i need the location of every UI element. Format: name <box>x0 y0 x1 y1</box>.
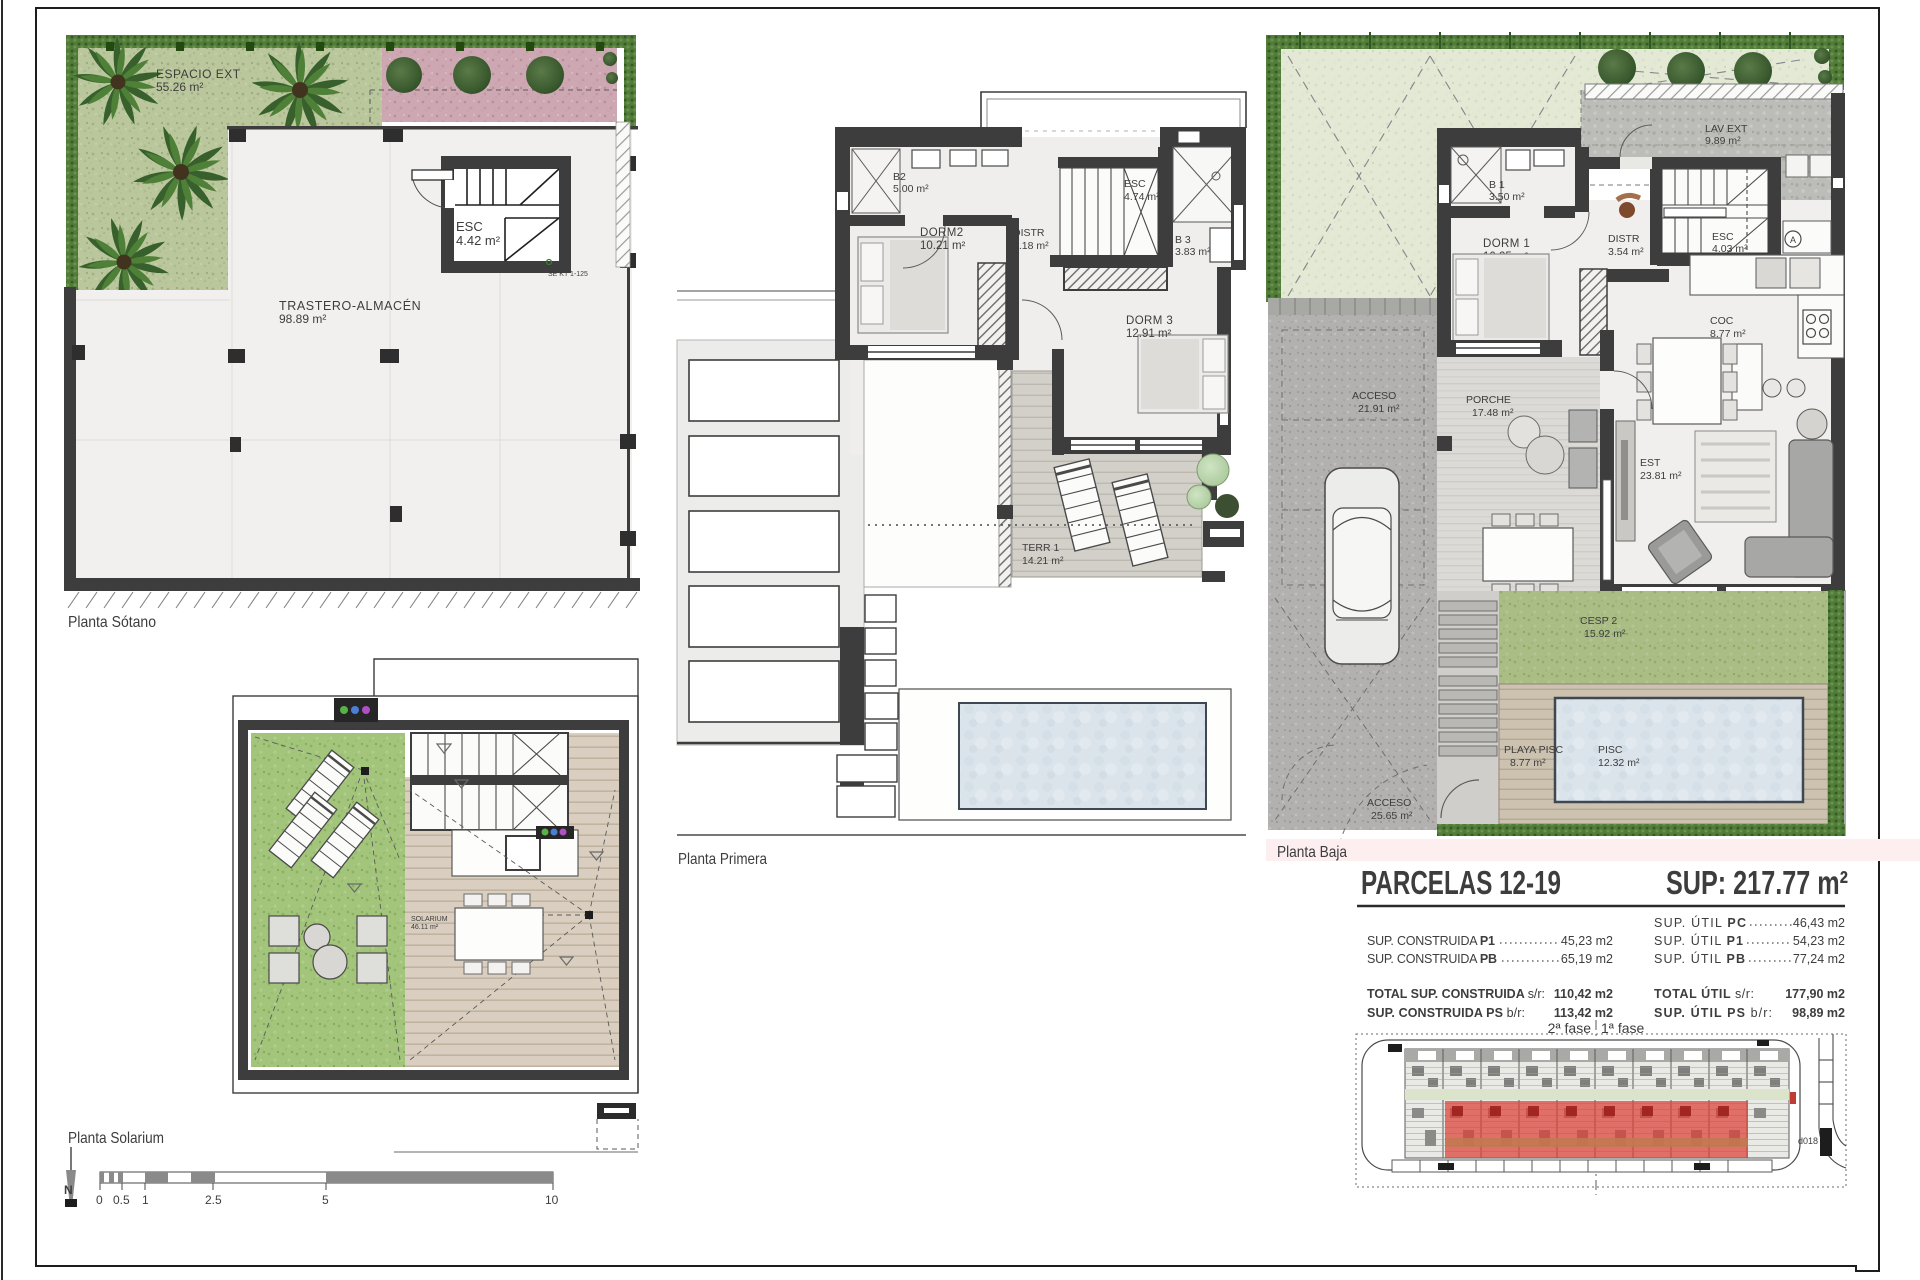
svg-text:46.11 m²: 46.11 m² <box>411 924 439 931</box>
svg-text:1: 1 <box>142 1193 149 1207</box>
svg-text:TRASTERO-ALMACÉN: TRASTERO-ALMACÉN <box>279 298 421 313</box>
svg-text:PISC: PISC <box>1598 744 1623 756</box>
svg-text:ACCESO: ACCESO <box>1352 390 1396 402</box>
svg-text:SUP. CONSTRUIDA P1: SUP. CONSTRUIDA P1 <box>1367 934 1495 948</box>
svg-text:3.54 m²: 3.54 m² <box>1608 246 1644 258</box>
svg-text:65,19 m2: 65,19 m2 <box>1561 952 1613 966</box>
svg-text:110,42 m2: 110,42 m2 <box>1554 987 1613 1001</box>
svg-text:21.91 m²: 21.91 m² <box>1358 403 1400 415</box>
svg-text:46,43 m2: 46,43 m2 <box>1793 916 1845 930</box>
svg-text:3.50 m²: 3.50 m² <box>1489 191 1525 203</box>
svg-text:ACCESO: ACCESO <box>1367 797 1411 809</box>
svg-text:PARCELAS 12-19: PARCELAS 12-19 <box>1361 864 1561 901</box>
svg-text:PLAYA PISC: PLAYA PISC <box>1504 744 1564 756</box>
svg-text:98,89 m2: 98,89 m2 <box>1792 1006 1845 1020</box>
svg-text:55.26 m²: 55.26 m² <box>156 80 203 94</box>
svg-text:23.81 m²: 23.81 m² <box>1640 470 1682 482</box>
svg-text:B 3: B 3 <box>1175 234 1191 246</box>
svg-text:SUP. CONSTRUIDA PS b/r:: SUP. CONSTRUIDA PS b/r: <box>1367 1006 1525 1020</box>
svg-text:A: A <box>1790 235 1796 245</box>
svg-text:15.92 m²: 15.92 m² <box>1584 628 1626 640</box>
svg-text:12.32 m²: 12.32 m² <box>1598 757 1640 769</box>
svg-text:SUP: 217.77 m²: SUP: 217.77 m² <box>1666 864 1848 901</box>
svg-text:2ª fase: 2ª fase <box>1548 1020 1592 1036</box>
svg-text:3.18 m²: 3.18 m² <box>1013 240 1049 252</box>
svg-text:ESPACIO EXT: ESPACIO EXT <box>156 67 241 81</box>
svg-text:14.21 m²: 14.21 m² <box>1022 555 1064 567</box>
svg-text:PORCHE: PORCHE <box>1466 394 1511 406</box>
svg-text:25.65 m²: 25.65 m² <box>1371 810 1413 822</box>
svg-text:77,24 m2: 77,24 m2 <box>1793 952 1845 966</box>
svg-text:4.42 m²: 4.42 m² <box>456 233 501 248</box>
svg-text:54,23 m2: 54,23 m2 <box>1793 934 1845 948</box>
svg-text:d018: d018 <box>1798 1136 1818 1146</box>
svg-text:45,23 m2: 45,23 m2 <box>1561 934 1613 948</box>
svg-text:SUP. ÚTIL PB: SUP. ÚTIL PB <box>1654 951 1745 966</box>
svg-text:0.5: 0.5 <box>113 1193 130 1207</box>
svg-text:17.48 m²: 17.48 m² <box>1472 407 1514 419</box>
svg-text:2.5: 2.5 <box>205 1193 222 1207</box>
svg-text:DORM2: DORM2 <box>920 227 964 239</box>
svg-text:Planta Sótano: Planta Sótano <box>68 614 156 631</box>
svg-text:B 1: B 1 <box>1489 179 1505 191</box>
svg-text:DORM 3: DORM 3 <box>1126 315 1173 327</box>
svg-text:N: N <box>64 1183 73 1197</box>
svg-text:B2: B2 <box>893 171 906 183</box>
svg-text:5.00 m²: 5.00 m² <box>893 183 929 195</box>
svg-text:10: 10 <box>545 1193 559 1207</box>
svg-text:EST: EST <box>1640 457 1661 469</box>
svg-text:LAV EXT: LAV EXT <box>1705 123 1748 135</box>
svg-text:177,90 m2: 177,90 m2 <box>1785 987 1845 1001</box>
svg-text:SUP. ÚTIL P1: SUP. ÚTIL P1 <box>1654 933 1743 948</box>
svg-text:0: 0 <box>96 1193 103 1207</box>
svg-text:CESP 2: CESP 2 <box>1580 615 1617 627</box>
svg-text:113,42 m2: 113,42 m2 <box>1554 1006 1613 1020</box>
svg-text:DISTR: DISTR <box>1608 233 1640 245</box>
svg-text:SOLARIUM: SOLARIUM <box>411 916 448 923</box>
svg-text:TOTAL SUP. CONSTRUIDA s/r:: TOTAL SUP. CONSTRUIDA s/r: <box>1367 987 1545 1001</box>
svg-text:TOTAL ÚTIL s/r:: TOTAL ÚTIL s/r: <box>1654 986 1754 1001</box>
svg-text:5: 5 <box>322 1193 329 1207</box>
svg-text:COC: COC <box>1710 315 1734 327</box>
svg-text:ESC: ESC <box>456 219 483 234</box>
svg-text:SUP. CONSTRUIDA PB: SUP. CONSTRUIDA PB <box>1367 952 1497 966</box>
svg-text:ESC: ESC <box>1124 178 1146 190</box>
svg-text:12.91 m²: 12.91 m² <box>1126 328 1172 340</box>
svg-text:DORM 1: DORM 1 <box>1483 238 1530 250</box>
svg-text:DISTR: DISTR <box>1013 227 1045 239</box>
svg-text:ESC: ESC <box>1712 231 1734 243</box>
svg-text:Planta Baja: Planta Baja <box>1277 844 1347 861</box>
svg-text:98.89 m²: 98.89 m² <box>279 312 326 326</box>
svg-text:3.83 m²: 3.83 m² <box>1175 246 1211 258</box>
svg-text:8.77 m²: 8.77 m² <box>1510 757 1546 769</box>
svg-text:10.21 m²: 10.21 m² <box>920 240 966 252</box>
svg-text:9.89 m²: 9.89 m² <box>1705 135 1741 147</box>
svg-text:SE KT 1-125: SE KT 1-125 <box>548 271 588 278</box>
svg-text:TERR 1: TERR 1 <box>1022 542 1060 554</box>
svg-text:SUP. ÚTIL PC: SUP. ÚTIL PC <box>1654 915 1746 930</box>
svg-text:Planta Primera: Planta Primera <box>678 851 767 868</box>
svg-text:Planta Solarium: Planta Solarium <box>68 1130 164 1147</box>
svg-text:4.74 m²: 4.74 m² <box>1124 191 1160 203</box>
